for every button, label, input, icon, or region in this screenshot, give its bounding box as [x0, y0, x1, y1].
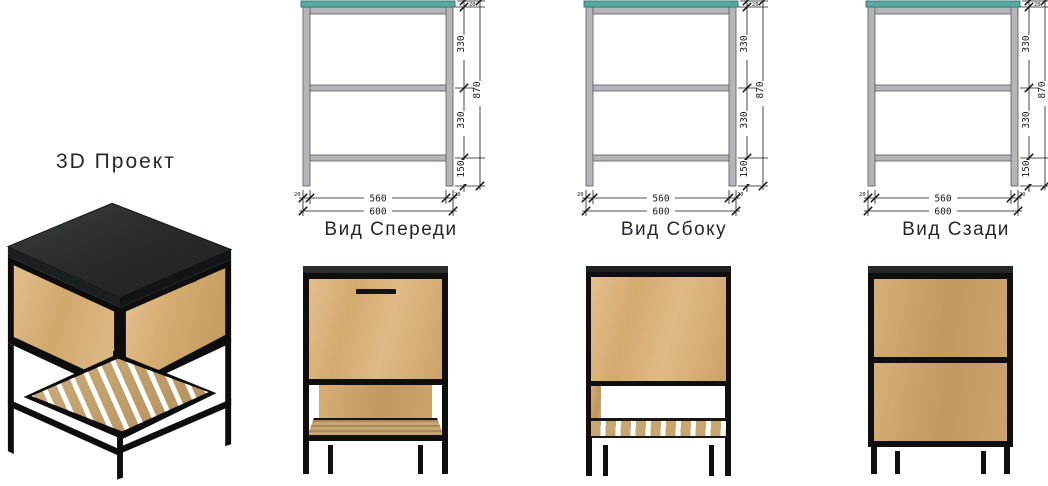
back-render-legs — [868, 447, 1013, 474]
svg-text:150: 150 — [456, 160, 467, 177]
design-sheet: 3D Проект — [0, 0, 1048, 486]
technical-drawing-back: 20 330 330 150 870 20 20 560 600 — [858, 0, 1048, 218]
front-render-legs — [303, 441, 448, 474]
svg-text:20: 20 — [294, 192, 301, 198]
svg-text:20: 20 — [454, 192, 461, 198]
back-render-top — [868, 266, 1013, 273]
back-view-label: Вид Сзади — [856, 219, 1048, 241]
svg-text:870: 870 — [755, 81, 766, 98]
side-render-legs — [586, 440, 731, 476]
front-render-post-right — [442, 385, 448, 441]
svg-text:20: 20 — [859, 192, 866, 198]
side-render-open-section — [586, 386, 731, 440]
countertop-strip — [584, 1, 738, 7]
front-render-shelf — [307, 418, 444, 437]
leg-left — [8, 343, 14, 454]
front-render — [303, 266, 448, 474]
svg-text:560: 560 — [934, 194, 951, 205]
side-render-panel — [586, 272, 731, 386]
drawing-frame — [584, 1, 738, 186]
svg-text:330: 330 — [739, 111, 750, 128]
svg-text:870: 870 — [472, 81, 483, 98]
svg-text:20: 20 — [1019, 192, 1026, 198]
svg-text:560: 560 — [369, 194, 386, 205]
countertop-strip — [866, 1, 1020, 7]
front-render-drawer — [303, 273, 448, 385]
technical-drawing-side: 20 330 330 150 870 20 20 560 600 — [576, 0, 774, 218]
width-dimensions: 20 20 560 600 — [859, 190, 1026, 218]
svg-text:330: 330 — [456, 35, 467, 52]
back-render-upper-panel — [868, 273, 1013, 363]
front-render-open-section — [303, 385, 448, 441]
side-render-shelf — [591, 418, 726, 438]
height-dimensions: 20 330 330 150 870 — [1020, 0, 1048, 192]
svg-text:600: 600 — [934, 207, 951, 218]
svg-text:20: 20 — [469, 2, 476, 8]
column-side-view: 20 330 330 150 870 20 20 560 600 Вид Сбо — [574, 0, 778, 486]
side-view-label: Вид Сбоку — [574, 219, 774, 241]
svg-text:600: 600 — [369, 207, 386, 218]
svg-text:20: 20 — [737, 192, 744, 198]
back-render-lower-panel — [868, 357, 1013, 447]
column-back-view: 20 330 330 150 870 20 20 560 600 Вид Сза — [856, 0, 1048, 486]
svg-text:330: 330 — [1021, 35, 1032, 52]
countertop-strip — [301, 1, 455, 7]
width-dimensions: 20 20 560 600 — [577, 190, 744, 218]
height-dimensions: 20 330 330 150 870 — [455, 0, 486, 192]
svg-text:560: 560 — [652, 194, 669, 205]
front-view-label: Вид Спереди — [291, 219, 491, 241]
svg-text:330: 330 — [1021, 111, 1032, 128]
svg-text:20: 20 — [752, 2, 759, 8]
width-dimensions: 20 20 560 600 — [294, 190, 461, 218]
svg-text:150: 150 — [739, 160, 750, 177]
technical-drawing: 20 330 330 150 870 20 20 560 600 — [858, 0, 1048, 218]
3d-render — [2, 190, 238, 486]
svg-text:20: 20 — [1034, 2, 1041, 8]
side-render — [586, 266, 731, 476]
svg-text:870: 870 — [1037, 81, 1048, 98]
front-render-top — [303, 266, 448, 273]
svg-text:330: 330 — [739, 35, 750, 52]
height-dimensions: 20 330 330 150 870 — [738, 0, 769, 192]
svg-text:150: 150 — [1021, 160, 1032, 177]
leg-right — [225, 338, 231, 446]
front-render-handle-slot — [356, 289, 396, 294]
technical-drawing: 20 330 330 150 870 20 20 560 600 — [576, 0, 774, 218]
technical-drawing-front: 20 330 330 150 870 20 20 560 600 — [293, 0, 491, 218]
column-front-view: 20 330 330 150 870 20 20 560 600 Вид Спе — [291, 0, 495, 486]
3d-project-title: 3D Проект — [56, 150, 176, 174]
drawing-frame — [301, 1, 455, 186]
drawing-frame — [866, 1, 1020, 186]
front-render-back-panel — [319, 385, 432, 421]
svg-text:20: 20 — [577, 192, 584, 198]
svg-text:330: 330 — [456, 111, 467, 128]
technical-drawing: 20 330 330 150 870 20 20 560 600 — [293, 0, 491, 218]
back-render — [868, 266, 1013, 474]
svg-text:600: 600 — [652, 207, 669, 218]
front-render-post-left — [303, 385, 309, 441]
